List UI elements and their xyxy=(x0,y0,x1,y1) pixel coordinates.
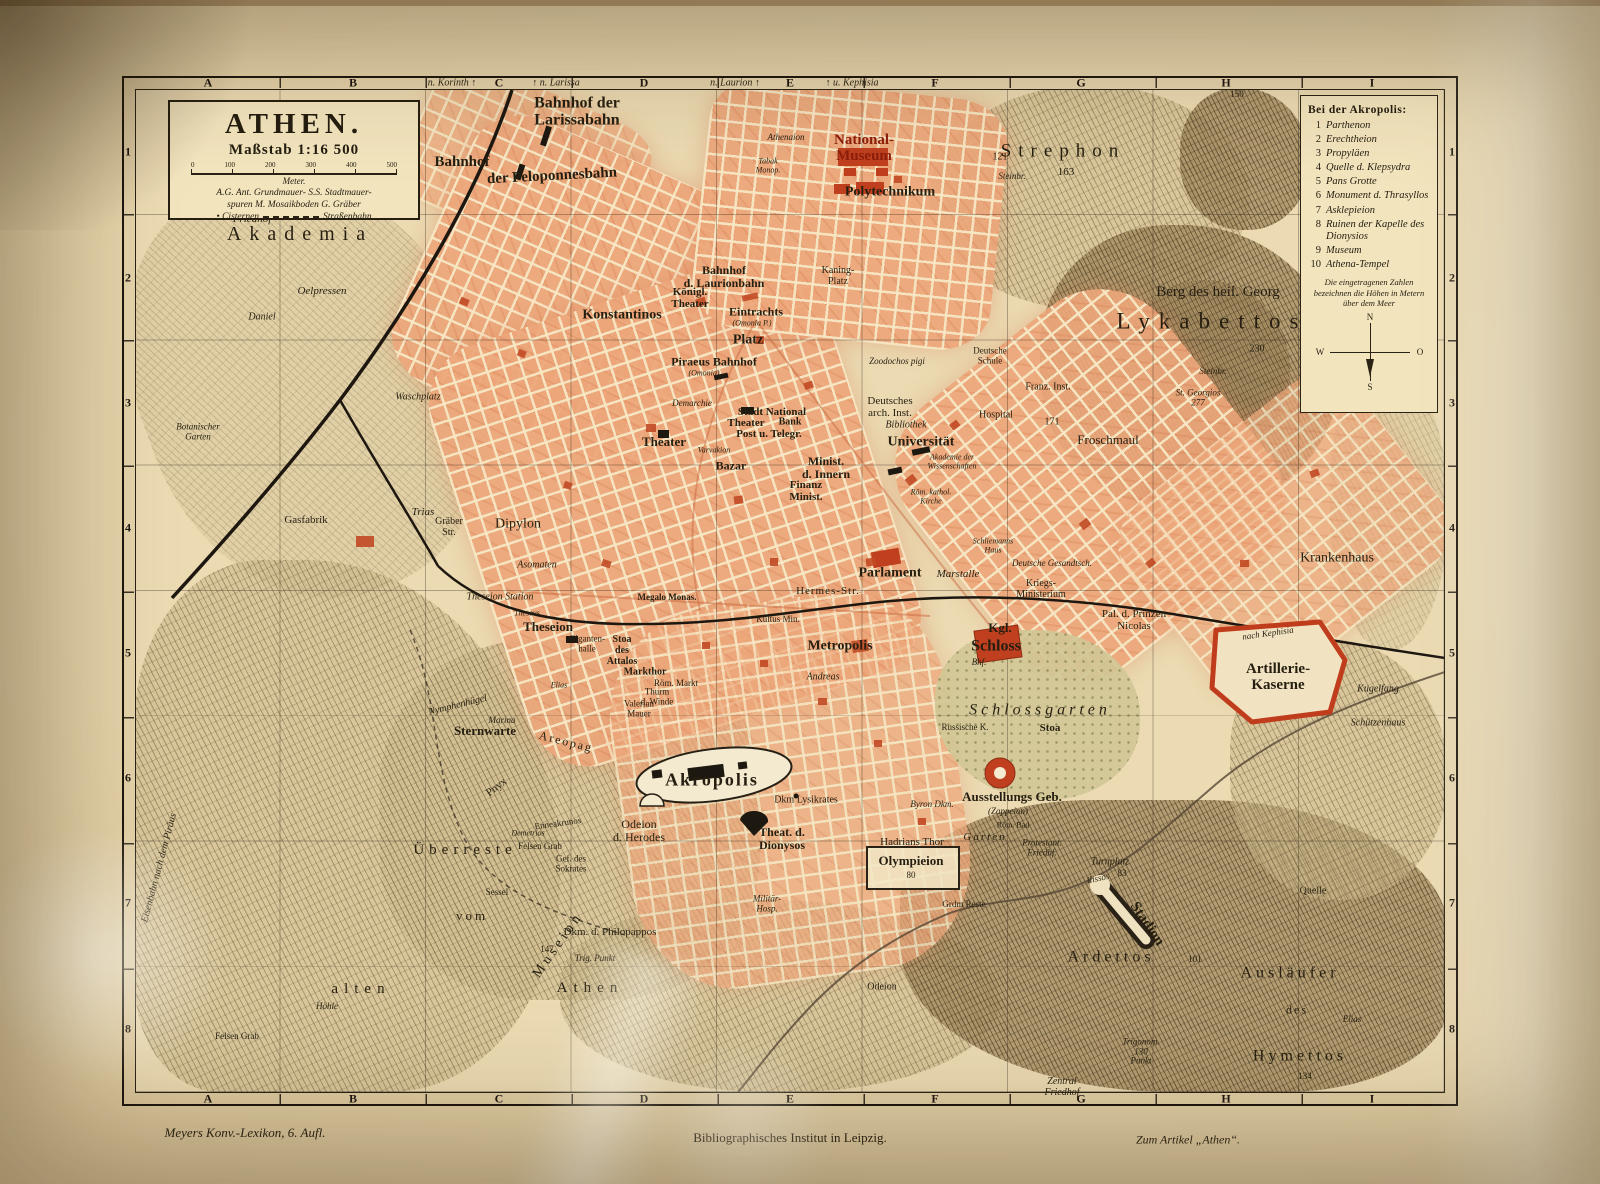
lb-des: des xyxy=(1286,1004,1308,1017)
scale-tick-200: 200 xyxy=(265,161,276,169)
lb-akademie-wiss: Akademie der Wissenschaften xyxy=(928,453,977,470)
scale-unit: Meter. xyxy=(178,176,410,186)
imprint-left: Meyers Konv.-Lexikon, 6. Aufl. xyxy=(165,1126,326,1140)
lb-artillerie: Artillerie- Kaserne xyxy=(1246,661,1310,693)
lb-rom-bad: Röm. Bad xyxy=(997,822,1029,831)
lb-piraeus-bahnhof: Piraeus Bahnhof xyxy=(671,356,757,369)
grid-row-7-right: 7 xyxy=(1449,896,1455,911)
lb-byron: Byron Dkm. xyxy=(910,800,953,810)
note-nach-laurion: n. Laurion ↑ xyxy=(710,79,760,90)
lb-bibliothek: Bibliothek xyxy=(885,421,926,432)
lb-universitaet: Universität xyxy=(888,434,955,449)
lb-franz-inst: Franz. Inst. xyxy=(1025,383,1070,394)
lb-st-georgios: St. Georgios 277 xyxy=(1176,388,1221,407)
scale-bar: 0 100 200 300 400 500 xyxy=(191,161,397,175)
lb-trig-punkt: Trig. Punkt xyxy=(575,954,616,964)
grid-row-4-right: 4 xyxy=(1449,521,1455,536)
lb-sokrates: Gef. des Sokrates xyxy=(556,854,587,873)
legend-item: 5Pans Grotte xyxy=(1308,176,1430,189)
lb-zentral-friedhof: Zentral Friedhof xyxy=(1045,1077,1080,1099)
lb-kugelfang: Kugelfang xyxy=(1357,685,1399,696)
lb-national-museum: National- Museum xyxy=(834,132,894,164)
lb-olympieion: Olympieion xyxy=(878,854,943,868)
lb-h134: 134 xyxy=(1298,1072,1312,1082)
grid-col-e-top: E xyxy=(786,76,794,91)
lb-marstalle: Marstalle xyxy=(937,569,980,581)
legend-item-label: Museum xyxy=(1326,245,1362,258)
lb-h171: 171 xyxy=(1045,418,1060,429)
legend-item-num: 10 xyxy=(1308,259,1321,272)
grid-col-i-top: I xyxy=(1370,76,1375,91)
imprint-center: Bibliographisches Institut in Leipzig. xyxy=(693,1131,887,1145)
lb-zappeion: (Zappeion) xyxy=(988,807,1028,817)
grid-col-d-bottom: D xyxy=(640,1092,649,1107)
legend-item-num: 5 xyxy=(1308,176,1321,189)
legend-item: 9Museum xyxy=(1308,245,1430,258)
grid-row-3-left: 3 xyxy=(125,396,131,411)
lb-parlament: Parlament xyxy=(859,565,922,580)
scale-tick-300: 300 xyxy=(306,161,317,169)
grid-row-7-left: 7 xyxy=(125,896,131,911)
lb-militaer: Militär- Hosp. xyxy=(753,894,781,913)
grid-col-f-top: F xyxy=(931,76,938,91)
grid-col-e-bottom: E xyxy=(786,1092,794,1107)
lb-elias-w: Elias xyxy=(551,682,567,691)
lb-froschmaul: Froschmaul xyxy=(1077,433,1138,447)
lb-h150: 150 xyxy=(1230,90,1244,100)
lb-steinbr-e: Steinbr. xyxy=(1199,367,1226,377)
grid-row-1-right: 1 xyxy=(1449,145,1455,160)
lb-steinbr-n: Steinbr. xyxy=(998,172,1025,182)
lb-trigonom: Trigonom. 130 Punkt xyxy=(1122,1037,1159,1066)
lb-daniel: Daniel xyxy=(248,313,275,324)
lb-graeber-str: Gräber Str. xyxy=(435,517,463,539)
grid-row-5-right: 5 xyxy=(1449,646,1455,661)
lb-h80: 80 xyxy=(907,871,916,881)
lb-koenigl-theater: Königl. Theater xyxy=(671,287,708,311)
lb-megalo: Megalo Monas. xyxy=(638,593,697,603)
lb-kaning-platz: Kaning- Platz xyxy=(822,266,855,288)
legend-cisternen: • Cisternen xyxy=(216,212,259,222)
lb-hermes: Hermes-Str. xyxy=(796,586,860,598)
frame-ticks-right xyxy=(1448,90,1458,1092)
legend-note: Die eingetragenen Zahlen bezeichnen die … xyxy=(1308,277,1430,309)
lb-kgl: Kgl. xyxy=(988,621,1011,635)
legend-item-num: 1 xyxy=(1308,120,1321,133)
lb-h101: 101 xyxy=(1188,955,1202,965)
lb-zoodochos: Zoodochos pigi xyxy=(869,357,925,367)
lb-deutsche-schule: Deutsche Schule xyxy=(973,346,1007,365)
scale-tick-500: 500 xyxy=(387,161,398,169)
grid-row-3-right: 3 xyxy=(1449,396,1455,411)
legend-item-label: Asklepieion xyxy=(1326,205,1375,218)
lb-athen-alt: Athen xyxy=(557,980,624,996)
grid-col-d-top: D xyxy=(640,76,649,91)
lb-berg-georg: Berg des heil. Georg xyxy=(1156,284,1280,300)
lb-h163: 163 xyxy=(1058,167,1075,179)
grid-col-h-bottom: H xyxy=(1221,1092,1230,1107)
lb-h121: 121 xyxy=(993,153,1008,164)
legend-line-2: spuren M. Mosaikboden G. Gräber xyxy=(178,200,410,212)
grid-row-4-left: 4 xyxy=(125,521,131,536)
lb-rom-markt: Röm. Markt xyxy=(654,679,698,689)
lb-h83: 83 xyxy=(1118,869,1127,879)
lb-protestant: Protestant. Friedhf. xyxy=(1022,838,1061,857)
lb-ueberreste: Überreste xyxy=(413,842,516,858)
legend-item: 8Ruinen der Kapelle des Dionysios xyxy=(1308,219,1430,244)
lb-asomaten: Asomaten xyxy=(517,561,556,572)
lb-waschplatz: Waschplatz xyxy=(395,393,440,404)
scale-bar-numbers: 0 100 200 300 400 500 xyxy=(191,161,397,169)
lb-rom-kath: Röm. kathol. Kirche xyxy=(911,488,952,505)
lb-stoa: Stoa xyxy=(1040,723,1061,735)
frame-ticks-left xyxy=(124,90,134,1092)
legend-item: 4Quelle d. Klepsydra xyxy=(1308,162,1430,175)
lb-sessel: Sessel xyxy=(486,888,509,898)
compass-north: N xyxy=(1367,312,1374,322)
lb-bahnhof-w: Bahnhof xyxy=(434,154,489,170)
lb-schloss: Schloss xyxy=(971,637,1021,654)
grid-row-6-right: 6 xyxy=(1449,771,1455,786)
lb-gasfabrik: Gasfabrik xyxy=(284,515,327,527)
lb-oelpressen: Oelpressen xyxy=(297,286,346,298)
lb-schuetzenhaus: Schützenhaus xyxy=(1351,719,1405,730)
lb-bazar: Bazar xyxy=(716,460,747,473)
legend-item-label: Erechtheion xyxy=(1326,134,1377,147)
lb-eintracht: Eintrachts xyxy=(729,306,783,319)
legend-item-num: 3 xyxy=(1308,148,1321,161)
lb-polytechnikum: Polytechnikum xyxy=(845,184,935,199)
lb-bank: Bank xyxy=(779,418,802,429)
akropolis-legend-title: Bei der Akropolis: xyxy=(1308,104,1430,116)
legend-strassenbahn: Straßenbahn xyxy=(323,212,372,222)
legend-item-num: 4 xyxy=(1308,162,1321,175)
lb-giganten: Giganten- halle xyxy=(569,634,605,653)
lb-valerian: Valerian Mauer xyxy=(624,699,654,718)
lb-finanz: Finanz Minist. xyxy=(789,480,822,504)
lb-theseion: Theseion xyxy=(523,620,573,634)
grid-row-1-left: 1 xyxy=(125,145,131,160)
lb-philopappos: Dkm. d. Philopappos xyxy=(564,927,657,939)
grid-col-a-top: A xyxy=(204,76,213,91)
lb-trias: Trias xyxy=(412,507,435,519)
compass-south: S xyxy=(1367,382,1372,392)
lb-schlossgarten: Schlossgarten xyxy=(969,701,1111,718)
note-nach-larissa: ↑ n. Larissa xyxy=(532,79,580,90)
grid-row-2-right: 2 xyxy=(1449,271,1455,286)
lb-hoehle: Höhle xyxy=(316,1002,338,1012)
grid-row-5-left: 5 xyxy=(125,646,131,661)
lb-metropolis: Metropolis xyxy=(807,638,872,653)
map-scale: Maßstab 1:16 500 xyxy=(178,142,410,159)
lb-quelle: Quelle xyxy=(1300,887,1327,898)
lb-alten: alten xyxy=(331,981,390,997)
lb-felsen-grab2: Felsen Grab xyxy=(215,1032,259,1042)
lb-kultus: Kultus Min. xyxy=(756,615,800,625)
lb-strephon: Strephon xyxy=(1001,142,1126,163)
lb-omonia: (Omonia) xyxy=(688,370,719,379)
imprint-right: Zum Artikel „Athen“. xyxy=(1136,1134,1240,1147)
legend-item-label: Ruinen der Kapelle des Dionysios xyxy=(1326,219,1430,244)
grid-col-c-top: C xyxy=(495,76,504,91)
grid-row-2-left: 2 xyxy=(125,271,131,286)
grid-col-a-bottom: A xyxy=(204,1092,213,1107)
lb-bahnhof-laurion: Bahnhof d. Laurionbahn xyxy=(684,264,765,290)
legend-item: 2Erechtheion xyxy=(1308,134,1430,147)
note-nach-korinth: n. Korinth ↑ xyxy=(428,79,477,90)
grid-col-b-bottom: B xyxy=(349,1092,357,1107)
lb-hymettos: Hymettos xyxy=(1253,1047,1347,1064)
compass-south-arrow xyxy=(1366,359,1374,377)
lb-deutsches-inst: Deutsches arch. Inst. xyxy=(867,396,912,420)
compass-west: W xyxy=(1316,347,1325,357)
lb-botanischer: Botanischer Garten xyxy=(176,422,220,441)
grid-col-i-bottom: I xyxy=(1370,1092,1375,1107)
legend-item-num: 9 xyxy=(1308,245,1321,258)
lb-demarchie: Demarchie xyxy=(672,399,712,409)
lb-odeion-s: Odeion xyxy=(867,983,896,994)
grid-row-8-right: 8 xyxy=(1449,1022,1455,1037)
lb-post: Post u. Telegr. xyxy=(736,429,802,441)
legend-item-label: Propyläen xyxy=(1326,148,1369,161)
lb-elias-s: Elias xyxy=(1343,1015,1362,1025)
photo-of-athens-map: A B C D E F G H I A B C D E F G H I 1 2 … xyxy=(0,0,1600,1184)
lb-hadrians: Hadrians Thor xyxy=(880,837,944,849)
lb-andreas: Andreas xyxy=(807,673,840,684)
lb-lysikrates: Dkm Lysikrates xyxy=(774,796,838,807)
lb-ardettos: Ardettos xyxy=(1067,948,1154,965)
legend-item: 10Athena-Tempel xyxy=(1308,259,1430,272)
scale-tick-400: 400 xyxy=(346,161,357,169)
legend-item-num: 8 xyxy=(1308,219,1321,244)
legend-item-num: 6 xyxy=(1308,190,1321,203)
lb-russische: Russische K. xyxy=(942,723,989,733)
lb-turnplatz: Turnplatz xyxy=(1091,858,1129,869)
lb-schliemann: Schliemanns Haus xyxy=(973,537,1013,554)
legend-item-label: Athena-Tempel xyxy=(1326,259,1389,272)
title-cartouche: ATHEN. Maßstab 1:16 500 0 100 200 300 40… xyxy=(168,100,420,220)
compass-rose: N S W O xyxy=(1308,313,1430,391)
legend-line-3: • CisternenStraßenbahn xyxy=(178,212,410,224)
legend-item-label: Quelle d. Klepsydra xyxy=(1326,162,1410,175)
lb-theseus: Theseus xyxy=(514,610,540,619)
compass-east: O xyxy=(1417,347,1424,357)
lb-garten: Garten xyxy=(963,832,1006,844)
lb-athenaion: Athenaion xyxy=(768,133,805,143)
lb-auslaeufer: Ausläufer xyxy=(1240,964,1339,981)
lb-krankenhaus: Krankenhaus xyxy=(1300,550,1374,565)
lb-bahnhof-larissa: Bahnhof der Larissabahn xyxy=(534,95,620,130)
lb-attalos: Stoa des Attalos xyxy=(607,635,638,667)
akropolis-legend: Bei der Akropolis: 1Parthenon 2Erechthei… xyxy=(1300,95,1438,413)
legend-item-label: Monument d. Thrasyllos xyxy=(1326,190,1428,203)
lb-sternwarte: Sternwarte xyxy=(454,724,516,738)
lb-minist-innern: Minist. d. Innern xyxy=(802,455,850,481)
legend-item-num: 7 xyxy=(1308,205,1321,218)
lb-varvakion: Varvakion xyxy=(698,447,730,456)
legend-item-label: Pans Grotte xyxy=(1326,176,1377,189)
lb-h230: 230 xyxy=(1250,345,1265,356)
lb-grdm: Grdm Reste xyxy=(942,900,985,910)
lb-dipylon: Dipylon xyxy=(495,516,541,531)
lb-platz: Platz xyxy=(733,332,763,347)
lb-konstantinos: Konstantinos xyxy=(582,307,661,322)
scale-tick-0: 0 xyxy=(191,161,195,169)
scale-tick-100: 100 xyxy=(225,161,236,169)
grid-col-c-bottom: C xyxy=(495,1092,504,1107)
grid-col-b-top: B xyxy=(349,76,357,91)
lb-tabak: Tabak Monop. xyxy=(756,157,781,174)
legend-item: 7Asklepieion xyxy=(1308,205,1430,218)
grid-col-f-bottom: F xyxy=(931,1092,938,1107)
grid-col-g-top: G xyxy=(1076,76,1085,91)
lb-bhf: Bhf. xyxy=(972,658,987,668)
lb-lykabettos: Lykabettos xyxy=(1117,310,1308,335)
lb-kriegs: Kriegs- Ministerium xyxy=(1016,579,1065,601)
lb-theater-w: Theater xyxy=(642,435,686,449)
lb-h147: 147 xyxy=(540,945,554,955)
lb-theat-dionysos: Theat. d. Dionysos xyxy=(759,826,805,852)
grid-row-6-left: 6 xyxy=(125,771,131,786)
scale-bar-line xyxy=(191,169,397,175)
legend-item: 1Parthenon xyxy=(1308,120,1430,133)
lb-odeion-herodes: Odeion d. Herodes xyxy=(613,818,665,844)
grid-row-8-left: 8 xyxy=(125,1022,131,1037)
lb-prinzen: Pal. d. Prinzen Nicolas xyxy=(1102,609,1166,633)
lb-akropolis: Akropolis xyxy=(665,770,759,789)
legend-item: 6Monument d. Thrasyllos xyxy=(1308,190,1430,203)
legend-item-label: Parthenon xyxy=(1326,120,1370,133)
lb-vom: vom xyxy=(456,909,488,923)
lb-gesandtsch: Deutsche Gesandtsch. xyxy=(1012,559,1092,569)
lb-hospital: Hospital xyxy=(979,411,1013,422)
lb-ausstellung: Ausstellungs Geb. xyxy=(962,790,1062,804)
lb-akademia: Akademia xyxy=(227,224,373,246)
lb-omonia-p: (Omonia P.) xyxy=(733,320,772,329)
note-nach-kephisia-top: ↑ u. Kephisia xyxy=(825,79,878,90)
lb-felsen-grab: Felsen Grab xyxy=(518,842,562,852)
lb-markthor: Markthor xyxy=(624,668,667,679)
legend-item-num: 2 xyxy=(1308,134,1321,147)
map-title: ATHEN. xyxy=(178,108,410,141)
lb-theseion-station: Theseion Station xyxy=(467,593,534,604)
strassenbahn-line-symbol xyxy=(263,216,319,218)
legend-line-1: A.G. Ant. Grundmauer- S.S. Stadtmauer- xyxy=(178,188,410,200)
legend-item: 3Propyläen xyxy=(1308,148,1430,161)
lb-demetrios: Demetrios xyxy=(511,830,544,839)
